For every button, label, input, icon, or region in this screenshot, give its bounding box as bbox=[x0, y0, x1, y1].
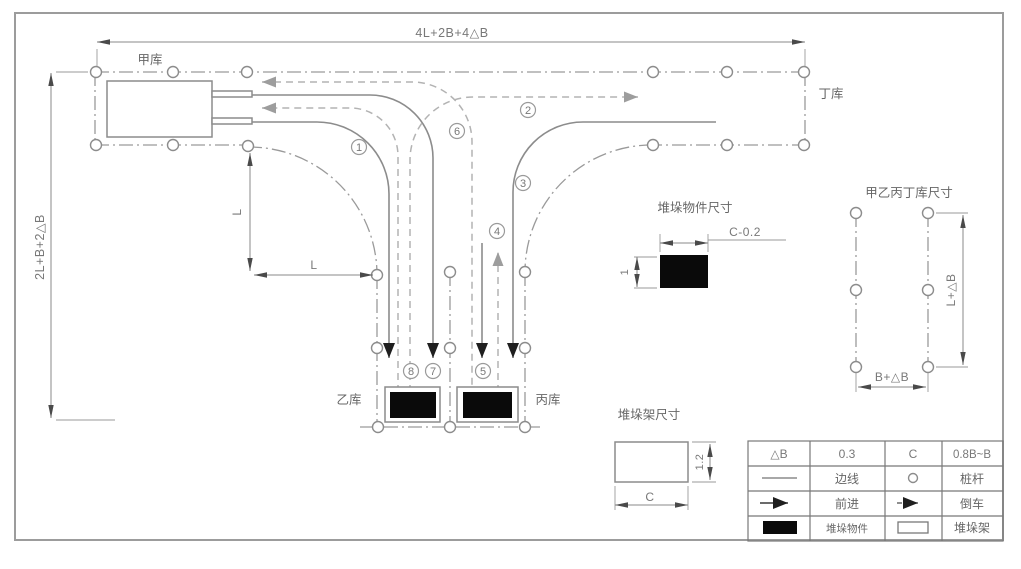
detail-object-size-title: 堆垛物件尺寸 bbox=[657, 200, 732, 215]
detail-warehouse-size: 甲乙丙丁库尺寸 L+△B B+△B bbox=[851, 185, 969, 392]
route-marker-number: 5 bbox=[480, 366, 486, 378]
pole-marker bbox=[91, 140, 102, 151]
forward-path-1 bbox=[252, 122, 389, 358]
route-marker-1: 1 bbox=[352, 140, 367, 155]
pole-marker bbox=[851, 285, 862, 296]
route-marker-8: 8 bbox=[404, 364, 419, 379]
pole-marker bbox=[520, 422, 531, 433]
route-marker-6: 6 bbox=[450, 124, 465, 139]
detail-rack-size-title: 堆垛架尺寸 bbox=[618, 407, 681, 422]
reverse-path-6 bbox=[262, 82, 472, 392]
rack-b-object bbox=[390, 392, 436, 418]
pole-marker bbox=[445, 422, 456, 433]
warehouse-a-label: 甲库 bbox=[137, 52, 162, 67]
legend-pole-label: 桩杆 bbox=[960, 471, 984, 486]
forward-path-3 bbox=[513, 122, 716, 358]
detail-warehouse-size-title: 甲乙丙丁库尺寸 bbox=[865, 185, 953, 200]
legend-forward-label: 前进 bbox=[835, 496, 859, 511]
object-width-label: C-0.2 bbox=[729, 225, 761, 239]
pole-marker bbox=[923, 208, 934, 219]
pole-marker bbox=[520, 343, 531, 354]
course-diagram: 4L+2B+4△B 2L+B+2△B L L 1 2 3 4 bbox=[0, 0, 1021, 569]
object-height-label: 1 bbox=[619, 269, 631, 276]
route-marker-number: 1 bbox=[356, 142, 362, 154]
pole-marker bbox=[242, 67, 253, 78]
route-marker-number: 7 bbox=[430, 366, 436, 378]
stacking-racks bbox=[385, 387, 518, 422]
pole-marker bbox=[520, 267, 531, 278]
pole-marker bbox=[851, 362, 862, 373]
route-marker-4: 4 bbox=[490, 224, 505, 239]
forklift-symbol bbox=[107, 81, 252, 137]
pole-marker bbox=[722, 140, 733, 151]
pole-marker bbox=[445, 343, 456, 354]
warehouse-c-label: 丙库 bbox=[535, 392, 560, 407]
legend-table: △B 0.3 C 0.8B~B 边线 桩杆 前进 倒车 堆垛物件 堆垛架 bbox=[748, 441, 1003, 541]
pole-marker bbox=[168, 67, 179, 78]
boundary-arc-left bbox=[248, 147, 377, 275]
pole-marker bbox=[372, 270, 383, 281]
dimension-top: 4L+2B+4△B bbox=[97, 26, 805, 66]
route-markers: 1 2 3 4 5 6 7 8 bbox=[352, 103, 536, 379]
dimension-left: 2L+B+2△B bbox=[33, 72, 115, 420]
warehouse-d-label: 丁库 bbox=[818, 86, 843, 101]
detail-object-size: 堆垛物件尺寸 C-0.2 1 bbox=[619, 200, 786, 288]
warehouse-height-label: L+△B bbox=[944, 274, 958, 307]
dimension-label-radius-v: L bbox=[230, 208, 244, 215]
detail-rack-size: 堆垛架尺寸 C 1.2 bbox=[615, 407, 716, 510]
pole-marker bbox=[373, 422, 384, 433]
route-marker-number: 8 bbox=[408, 366, 414, 378]
pole-marker bbox=[372, 343, 383, 354]
legend-delta-b-value: 0.3 bbox=[839, 447, 856, 461]
pole-marker bbox=[851, 208, 862, 219]
pole-marker bbox=[799, 67, 810, 78]
dimension-label-left: 2L+B+2△B bbox=[33, 214, 47, 280]
dimension-label-radius-h: L bbox=[310, 258, 317, 272]
pole-marker bbox=[648, 67, 659, 78]
legend-c-value: 0.8B~B bbox=[953, 449, 991, 461]
legend-stack-rack-label: 堆垛架 bbox=[954, 520, 990, 535]
legend-c-label: C bbox=[909, 447, 918, 461]
rack-c-object bbox=[463, 392, 512, 418]
route-marker-5: 5 bbox=[476, 364, 491, 379]
pole-marker bbox=[799, 140, 810, 151]
stack-rack-symbol bbox=[898, 522, 928, 533]
route-marker-number: 6 bbox=[454, 126, 460, 138]
pole-marker bbox=[91, 67, 102, 78]
warehouse-width-label: B+△B bbox=[875, 370, 909, 384]
pole-marker bbox=[648, 140, 659, 151]
forklift-fork-upper bbox=[212, 91, 252, 97]
route-marker-7: 7 bbox=[426, 364, 441, 379]
object-symbol bbox=[660, 255, 708, 288]
legend-delta-b-label: △B bbox=[770, 447, 787, 461]
pole-marker bbox=[722, 67, 733, 78]
dimension-label-top: 4L+2B+4△B bbox=[415, 26, 488, 40]
rack-symbol bbox=[615, 442, 688, 482]
pole-marker bbox=[923, 285, 934, 296]
forward-path-7 bbox=[252, 95, 433, 358]
route-marker-2: 2 bbox=[521, 103, 536, 118]
pole-marker bbox=[168, 140, 179, 151]
route-marker-number: 3 bbox=[520, 178, 526, 190]
boundary-arc-right bbox=[525, 145, 653, 272]
pole-marker bbox=[445, 267, 456, 278]
route-marker-number: 4 bbox=[494, 226, 500, 238]
stack-object-symbol bbox=[763, 521, 797, 534]
dimension-turn-radius: L L bbox=[230, 153, 373, 275]
forward-paths bbox=[252, 95, 716, 358]
pole-symbol bbox=[909, 474, 918, 483]
forklift-body bbox=[107, 81, 212, 137]
pole-marker bbox=[243, 141, 254, 152]
rack-height-label: 1.2 bbox=[694, 454, 706, 471]
forklift-fork-lower bbox=[212, 118, 252, 124]
route-marker-3: 3 bbox=[516, 176, 531, 191]
rack-width-label: C bbox=[645, 490, 654, 504]
pole-marker bbox=[923, 362, 934, 373]
warehouse-b-label: 乙库 bbox=[336, 392, 361, 407]
route-marker-number: 2 bbox=[525, 105, 531, 117]
legend-stack-object-label: 堆垛物件 bbox=[826, 522, 868, 535]
legend-edge-line-label: 边线 bbox=[835, 472, 859, 486]
legend-reverse-label: 倒车 bbox=[960, 496, 984, 511]
